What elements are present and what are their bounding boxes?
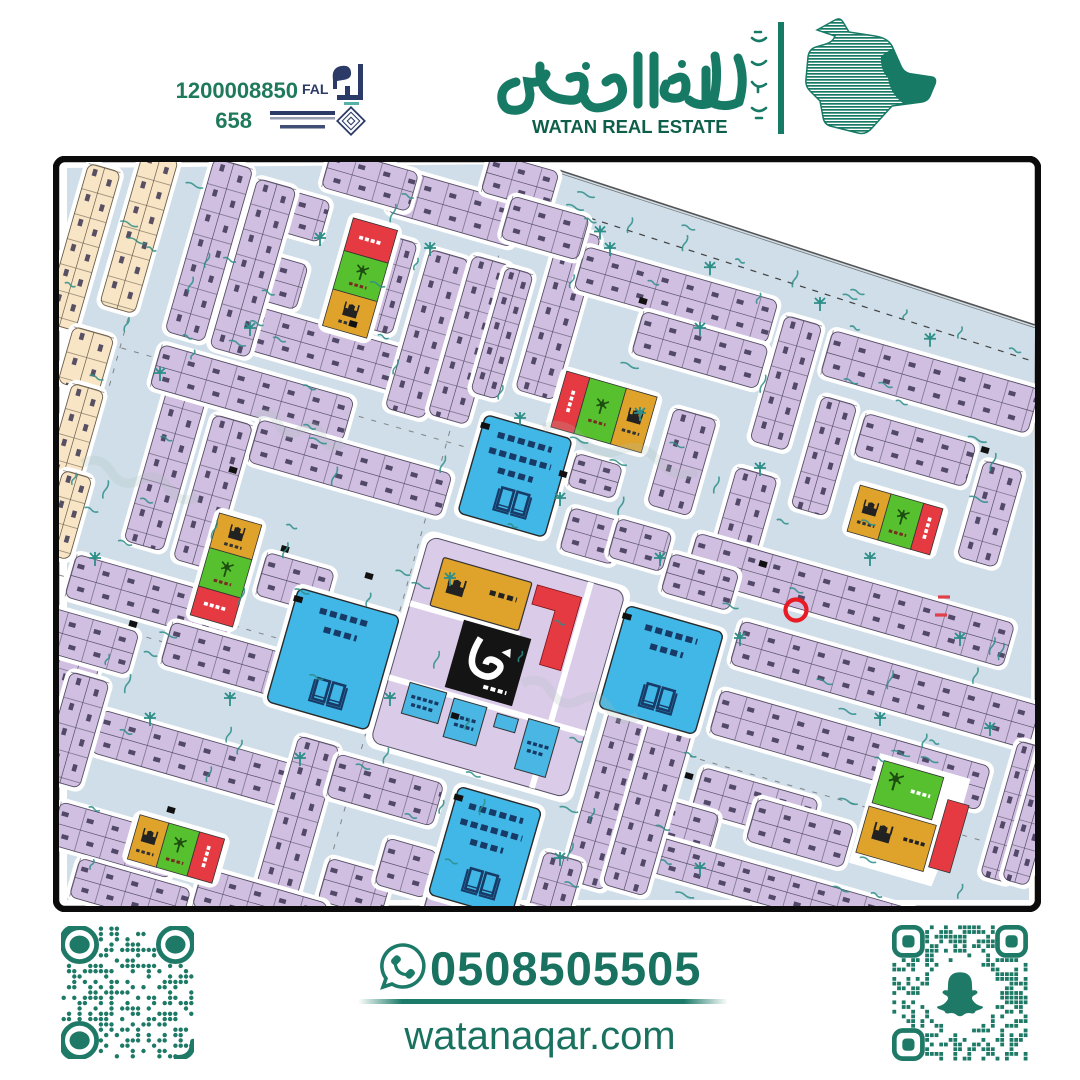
svg-text:WATAN REAL ESTATE: WATAN REAL ESTATE [532,116,728,137]
svg-text:FAL: FAL [302,81,329,97]
